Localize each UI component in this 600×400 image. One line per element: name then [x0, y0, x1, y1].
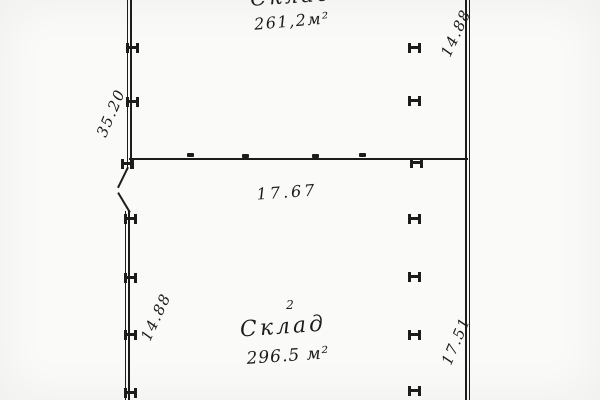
- left-wall-lower: [125, 211, 130, 400]
- partition-tick: [242, 154, 249, 158]
- column-marker: [408, 386, 421, 396]
- wall-tie-marker: [124, 330, 137, 340]
- partition-tick: [312, 154, 319, 158]
- dim-left-upper: 35.20: [93, 86, 129, 139]
- column-marker: [408, 96, 421, 106]
- wall-tie-marker: [124, 214, 137, 224]
- door-opening-stroke-lower: [117, 192, 131, 213]
- column-marker: [408, 272, 421, 282]
- room-2-area: 296.5 м²: [246, 343, 330, 369]
- floor-plan-canvas: Склад 261,2м² 2 Склад 296.5 м² 35.20 14.…: [0, 0, 600, 400]
- partition-tick: [187, 153, 194, 157]
- column-marker: [410, 158, 423, 168]
- left-wall-upper: [127, 0, 132, 169]
- door-opening-stroke-upper: [117, 167, 129, 189]
- dim-partition: 17.67: [256, 180, 318, 203]
- partition-tick: [359, 153, 366, 157]
- room-2-label: Склад: [239, 312, 327, 343]
- wall-tie-marker: [126, 97, 139, 107]
- column-marker: [408, 43, 421, 53]
- room-2-number: 2: [286, 298, 294, 312]
- wall-tie-marker: [121, 159, 134, 169]
- column-marker: [408, 214, 421, 224]
- wall-tie-marker: [124, 273, 137, 283]
- wall-tie-marker: [126, 43, 139, 53]
- column-marker: [408, 330, 421, 340]
- room-1-area: 261,2м²: [253, 8, 330, 34]
- wall-tie-marker: [124, 388, 137, 398]
- dim-left-lower: 14.88: [137, 290, 175, 343]
